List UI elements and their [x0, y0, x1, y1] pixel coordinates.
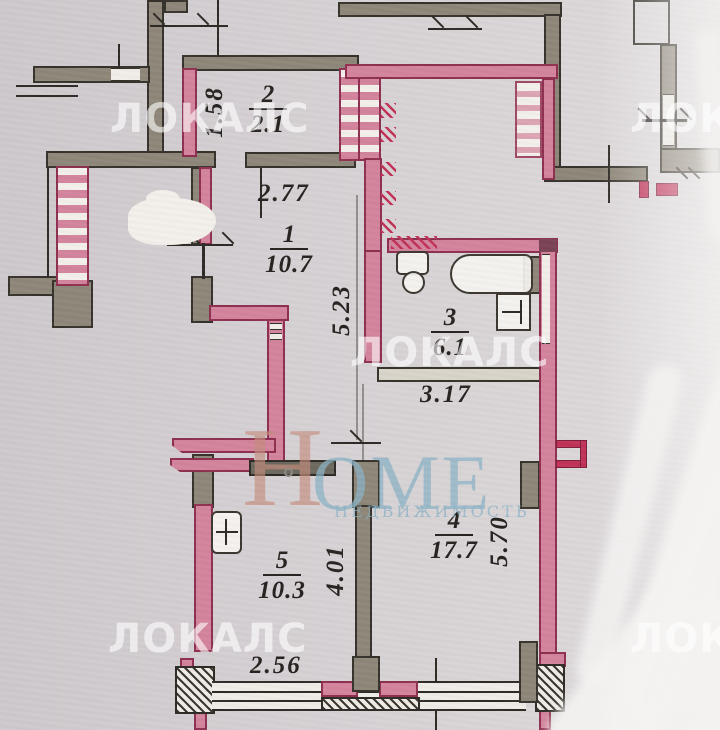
room-label-5: 5 10.3	[250, 548, 314, 603]
vent-shaft-wall	[515, 81, 542, 158]
insulation-hatch	[321, 697, 420, 711]
room-number: 1	[270, 222, 309, 250]
tick-mark	[222, 232, 235, 245]
vent-shaft-wall	[56, 166, 89, 286]
watermark: ЛОКАЛС	[350, 330, 549, 376]
watermark: ЛОКАЛС	[630, 96, 720, 142]
dimension-label: 2.77	[258, 180, 310, 208]
corner-hatch	[175, 666, 215, 714]
washbasin-icon	[496, 293, 531, 331]
wall-segment	[364, 158, 382, 253]
radiator-icon	[211, 511, 242, 554]
room-number: 3	[431, 305, 470, 333]
window-tick	[16, 95, 78, 97]
dimension-line	[150, 25, 228, 27]
logo-subtitle: НЕДВИЖИМОСТЬ	[334, 502, 529, 521]
faucet-line	[502, 311, 522, 313]
window	[111, 68, 140, 81]
zigzag-mark	[381, 162, 396, 176]
corner-hatch	[535, 664, 565, 712]
wall-line	[47, 167, 49, 277]
window-tick	[16, 85, 78, 87]
bathtub-icon	[450, 254, 533, 294]
wall-line	[202, 243, 205, 279]
wall-segment	[345, 64, 558, 79]
door-opening	[270, 323, 282, 330]
wall-pier	[352, 656, 380, 692]
zigzag-mark	[381, 103, 396, 118]
tick-mark	[197, 13, 210, 26]
folding-door-mark	[391, 236, 437, 249]
wall-segment	[542, 78, 555, 180]
zigzag-mark	[381, 191, 396, 205]
radiator-line	[216, 531, 238, 533]
tick-mark	[432, 16, 445, 29]
zigzag-mark	[381, 127, 396, 142]
wall-segment	[182, 55, 359, 71]
window-sill	[379, 681, 418, 697]
shaft-divider	[358, 70, 360, 159]
room-area: 10.3	[250, 576, 314, 603]
toilet-bowl-icon	[402, 271, 425, 294]
wall-segment	[164, 0, 188, 13]
whiteout-blob	[146, 190, 180, 208]
room-number: 5	[263, 548, 302, 576]
wall-pier	[52, 280, 93, 328]
zigzag-mark	[381, 219, 396, 233]
wall-cap	[539, 239, 557, 252]
agency-logo: H OME НЕДВИЖИМОСТЬ	[240, 404, 520, 534]
room-area: 10.7	[256, 250, 322, 277]
floor-plan-photo: 2 2.1 1 10.7 3 6.1 4 17.7 5 10.3 2.77 3.…	[0, 0, 720, 730]
watermark: ЛОКАЛС	[630, 616, 720, 662]
dimension-line	[428, 28, 482, 30]
faucet-line	[520, 300, 522, 324]
watermark: ЛОКАЛС	[108, 616, 307, 662]
tick-mark	[118, 44, 120, 68]
radiator-line	[225, 519, 227, 545]
door-opening	[270, 333, 282, 340]
wall-segment	[338, 2, 562, 17]
dimension-label: 4.01	[322, 538, 350, 602]
room-area: 17.7	[420, 536, 488, 563]
watermark: ЛОКАЛС	[110, 96, 309, 142]
wall-pier	[519, 641, 538, 703]
logo-initial: H	[242, 412, 323, 524]
radiator-icon	[580, 440, 587, 468]
logo-dot	[284, 468, 293, 477]
dimension-line	[217, 0, 219, 56]
tick-mark	[466, 16, 479, 29]
vent-shaft-wall	[339, 68, 381, 161]
room-label-1: 1 10.7	[256, 222, 322, 277]
